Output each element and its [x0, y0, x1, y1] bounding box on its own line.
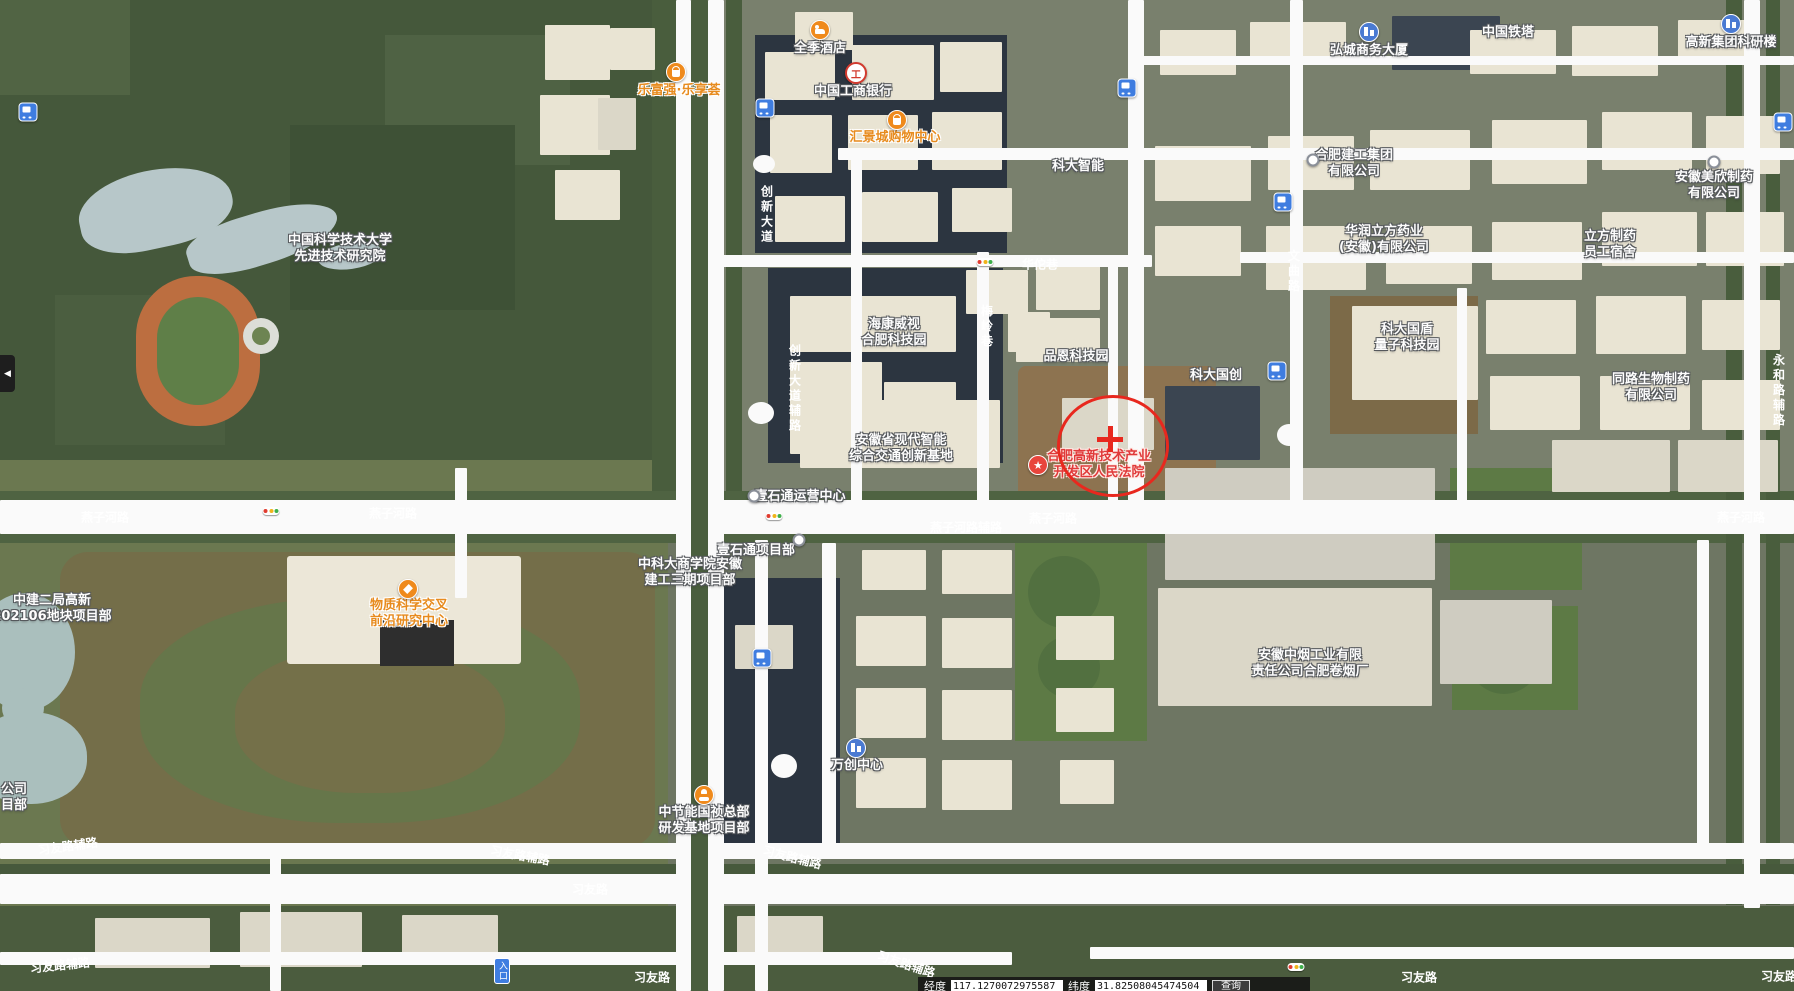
road-xiyou-4: 习友路 [1761, 971, 1794, 984]
map-building [1490, 376, 1580, 430]
map-road [1697, 540, 1709, 850]
poi-label-line: (安徽)有限公司 [1339, 240, 1429, 256]
map-building [1158, 588, 1432, 706]
poi-hikvision-hefei-tech-park[interactable]: 海康威视合肥科技园 [861, 317, 926, 349]
road-chuangxin-avenue: 创新大道 [760, 185, 773, 245]
poi-wanchuang-center-icon[interactable] [846, 738, 866, 758]
poi-label-line: 安徽省现代智能 [849, 433, 953, 449]
collapse-panel-button[interactable]: ◀ [0, 355, 15, 392]
poi-label-line: 公司 [1, 782, 27, 798]
map-building [1678, 440, 1778, 492]
poi-label-line: 立方制药 [1584, 229, 1636, 245]
poi-label-line: 中节能国祯总部 [658, 805, 749, 821]
poi-label-line: 综合交通创新基地 [849, 449, 953, 465]
poi-label-line: 科大智能 [1052, 159, 1104, 175]
map-road [455, 468, 467, 598]
bus-station-icon[interactable] [756, 99, 775, 118]
poi-anhui-intelligent-transport-base[interactable]: 安徽省现代智能综合交通创新基地 [849, 433, 953, 465]
latitude-label: 纬度 [1068, 980, 1090, 991]
poi-label-line: 壹石通项目部 [717, 543, 795, 559]
map-building [1060, 760, 1114, 804]
search-result-marker-crosshair [1097, 426, 1123, 452]
poi-hefei-construction-group-icon[interactable] [1307, 154, 1320, 167]
map-building [862, 550, 926, 590]
bus-station-icon[interactable] [753, 649, 772, 668]
map-road [1240, 252, 1794, 263]
map-building [942, 760, 1012, 810]
map-terrain [2, 688, 44, 728]
traffic-light-icon [1288, 963, 1305, 971]
map-building [770, 115, 832, 173]
latitude-input[interactable] [1095, 980, 1207, 991]
map-road [977, 252, 989, 505]
road-yanzihe-service: 燕子河路辅路 [930, 522, 1002, 535]
poi-cecep-guozhen-rd-base-project-icon[interactable] [694, 785, 714, 805]
map-road [676, 255, 1152, 267]
poi-hongcheng-business-tower-icon[interactable] [1359, 22, 1379, 42]
map-building [940, 42, 1002, 92]
poi-yishitong-operation-center[interactable]: 壹石通运营中心 [754, 489, 845, 505]
map-building [1702, 300, 1780, 350]
map-building [1602, 112, 1692, 170]
poi-china-tower[interactable]: 中国铁塔 [1482, 25, 1534, 41]
map-building [775, 196, 845, 242]
map-building [856, 616, 926, 666]
poi-label-line: 安徽美欣制药 [1675, 170, 1753, 186]
poi-label-line: 品恩科技园 [1043, 349, 1108, 365]
poi-yishitong-operation-center-icon[interactable] [748, 490, 761, 503]
poi-label-line: 汇景城购物中心 [849, 130, 940, 146]
poi-matter-science-research-center-icon[interactable] [398, 579, 418, 599]
map-road [748, 402, 774, 424]
poi-label-line: 同路生物制药 [1612, 372, 1690, 388]
poi-matter-science-research-center[interactable]: 物质科学交叉前沿研究中心 [370, 598, 448, 630]
map-building [1440, 600, 1552, 684]
map-terrain [252, 327, 270, 345]
map-building [942, 690, 1012, 740]
map-building [1165, 386, 1260, 460]
poi-hefei-construction-group[interactable]: 合肥建工集团有限公司 [1315, 148, 1393, 180]
poi-label-line: 合肥科技园 [861, 333, 926, 349]
map-road [1090, 947, 1794, 959]
map-road [0, 500, 1794, 534]
road-xiyou-1: 习友路 [572, 884, 608, 897]
poi-label-line: 有限公司 [1315, 164, 1393, 180]
map-building [1056, 688, 1114, 732]
map-road [708, 0, 724, 991]
poi-label-line: 前沿研究中心 [370, 614, 448, 630]
poi-label-line: 量子科技园 [1374, 338, 1439, 354]
poi-lifang-pharma-dormitory[interactable]: 立方制药员工宿舍 [1584, 229, 1636, 261]
poi-label-line: 高新集团科研楼 [1685, 35, 1776, 51]
map-road [676, 0, 691, 991]
map-building [598, 98, 636, 150]
entrance-badge: 入口 [494, 958, 510, 984]
poi-yishitong-project-dept[interactable]: 壹石通项目部 [717, 543, 795, 559]
poi-cecep-guozhen-rd-base-project[interactable]: 中节能国祯总部研发基地项目部 [658, 805, 749, 837]
map-terrain [0, 0, 130, 95]
map-building [862, 192, 938, 242]
poi-gaoxin-group-research-building[interactable]: 高新集团科研楼 [1685, 35, 1776, 51]
bus-station-icon[interactable] [1268, 362, 1287, 381]
map-building [1596, 296, 1686, 354]
map-road [270, 843, 281, 991]
poi-label-line: 中国工商银行 [814, 84, 892, 100]
map-building [610, 28, 655, 70]
poi-ustc-advanced-institute[interactable]: 中国科学技术大学先进技术研究院 [288, 233, 392, 265]
poi-label-line: 研发基地项目部 [658, 821, 749, 837]
map-terrain [157, 297, 239, 405]
map-building [545, 25, 610, 80]
poi-label-line: 中国科学技术大学 [288, 233, 392, 249]
road-chuangxin-avenue-service: 创新大道辅路 [788, 344, 801, 434]
map-road [691, 0, 708, 991]
poi-icbc-bank[interactable]: 中国工商银行 [814, 84, 892, 100]
poi-huijingcheng-mall-icon[interactable] [887, 110, 907, 130]
poi-label-line: 安徽中烟工业有限 [1251, 648, 1368, 664]
map-building [952, 188, 1012, 232]
poi-label-line: 建工三期项目部 [638, 573, 742, 589]
poi-label-line: 合肥建工集团 [1315, 148, 1393, 164]
bus-station-icon[interactable] [19, 103, 38, 122]
traffic-light-icon [766, 512, 783, 520]
map-building [942, 618, 1012, 668]
road-meiling-lane: 梅岭巷 [980, 305, 993, 350]
map-building [1486, 300, 1576, 354]
road-yanzihe-4: 燕子河路 [1717, 512, 1765, 525]
map-building [1492, 222, 1582, 280]
map-building [1056, 616, 1114, 660]
poi-quanji-hotel[interactable]: 全季酒店 [794, 41, 846, 57]
poi-label-line: 责任公司合肥卷烟厂 [1251, 664, 1368, 680]
map-road [822, 543, 836, 845]
longitude-input[interactable] [951, 980, 1063, 991]
bus-station-icon[interactable] [1118, 79, 1137, 98]
map-road [1277, 424, 1301, 446]
poi-huijingcheng-mall[interactable]: 汇景城购物中心 [849, 130, 940, 146]
poi-label-line: 华润立方药业 [1339, 224, 1429, 240]
poi-label-line: 海康威视 [861, 317, 926, 333]
map-building [1160, 30, 1236, 75]
map-building [1552, 440, 1670, 492]
poi-label-line: 乐富强·乐享荟 [638, 83, 721, 99]
road-huatuo-lane: 华佗巷 [1022, 259, 1058, 272]
poi-ustc-business-school-project[interactable]: 中科大商学院安徽建工三期项目部 [638, 557, 742, 589]
poi-anhui-meixin-pharma[interactable]: 安徽美欣制药有限公司 [1675, 170, 1753, 202]
poi-label-line: 目部 [1, 798, 27, 814]
road-xiyou-3: 习友路 [1401, 972, 1437, 985]
road-yanzihe-2: 燕子河路 [369, 508, 417, 521]
poi-label-line: 全季酒店 [794, 41, 846, 57]
poi-label-line: 物质科学交叉 [370, 598, 448, 614]
poi-huarun-lifang-pharma[interactable]: 华润立方药业(安徽)有限公司 [1339, 224, 1429, 256]
map-road [753, 155, 775, 173]
map-road [1744, 0, 1760, 908]
bus-station-icon[interactable] [1774, 113, 1793, 132]
poi-label-line: 科大国盾 [1374, 322, 1439, 338]
poi-clipped-label-fragment[interactable]: 公司目部 [1, 782, 27, 814]
satellite-map[interactable]: 中国科学技术大学先进技术研究院全季酒店乐富强·乐享荟中国工商银行工汇景城购物中心… [0, 0, 1794, 991]
poi-wanchuang-center[interactable]: 万创中心 [831, 758, 883, 774]
poi-lefuqiang-lexianghui[interactable]: 乐富强·乐享荟 [638, 83, 721, 99]
poi-anhui-meixin-pharma-icon[interactable] [1708, 156, 1721, 169]
map-building [555, 170, 620, 220]
coordinate-bar: 经度 纬度 查询 [918, 977, 1310, 991]
poi-hongcheng-business-tower[interactable]: 弘城商务大厦 [1330, 43, 1408, 59]
poi-anhui-tobacco-hefei-factory[interactable]: 安徽中烟工业有限责任公司合肥卷烟厂 [1251, 648, 1368, 680]
poi-label-line: 壹石通运营中心 [754, 489, 845, 505]
poi-icbc-bank-icon[interactable]: 工 [845, 62, 867, 84]
poi-keda-zhineng[interactable]: 科大智能 [1052, 159, 1104, 175]
poi-label-line: 中国铁塔 [1482, 25, 1534, 41]
road-wenqu-road: 文曲路 [1287, 250, 1300, 295]
poi-pinen-tech-park[interactable]: 品恩科技园 [1043, 349, 1108, 365]
poi-keda-guochuang[interactable]: 科大国创 [1190, 368, 1242, 384]
longitude-label: 经度 [924, 980, 946, 991]
poi-label-line: 员工宿舍 [1584, 245, 1636, 261]
poi-hefei-hightech-court-icon[interactable]: ★ [1028, 455, 1048, 475]
map-building [942, 550, 1012, 594]
coordinate-search-button[interactable]: 查询 [1212, 980, 1250, 991]
map-building [856, 688, 926, 738]
poi-gaoxin-group-research-building-icon[interactable] [1721, 14, 1741, 34]
poi-label-line: 202106地块项目部 [0, 609, 112, 625]
map-road [771, 754, 797, 778]
poi-tonglu-biopharma[interactable]: 同路生物制药有限公司 [1612, 372, 1690, 404]
map-terrain [235, 648, 505, 793]
map-building [1572, 26, 1658, 76]
map-building [1036, 266, 1100, 310]
road-yonghe-service: 永和路辅路 [1772, 354, 1785, 429]
map-building [966, 270, 1028, 314]
map-road [1130, 56, 1794, 65]
poi-label-line: 有限公司 [1612, 388, 1690, 404]
poi-label-line: 弘城商务大厦 [1330, 43, 1408, 59]
map-building [1702, 380, 1780, 430]
map-terrain [0, 534, 1794, 543]
traffic-light-icon [263, 507, 280, 515]
map-building [932, 112, 1002, 170]
poi-label-line: 中建二局高新 [0, 593, 112, 609]
poi-lefuqiang-lexianghui-icon[interactable] [666, 62, 686, 82]
road-xiyou-2: 习友路 [634, 972, 670, 985]
poi-label-line: 有限公司 [1675, 186, 1753, 202]
poi-label-line: 先进技术研究院 [288, 249, 392, 265]
map-road [1457, 288, 1467, 505]
road-yanzihe-1: 燕子河路 [81, 512, 129, 525]
road-yanzihe-3: 燕子河路 [1029, 513, 1077, 526]
bus-station-icon[interactable] [1274, 193, 1293, 212]
poi-quanji-hotel-icon[interactable] [810, 20, 830, 40]
traffic-light-icon [977, 258, 994, 266]
poi-guodun-quantum-tech-park[interactable]: 科大国盾量子科技园 [1374, 322, 1439, 354]
poi-label-line: 万创中心 [831, 758, 883, 774]
poi-zhongjian-plot-project[interactable]: 中建二局高新202106地块项目部 [0, 593, 112, 625]
poi-label-line: 科大国创 [1190, 368, 1242, 384]
poi-yishitong-project-dept-icon[interactable] [793, 534, 806, 547]
map-building [1155, 226, 1241, 276]
poi-label-line: 中科大商学院安徽 [638, 557, 742, 573]
map-road [755, 540, 768, 991]
map-terrain [726, 0, 742, 505]
